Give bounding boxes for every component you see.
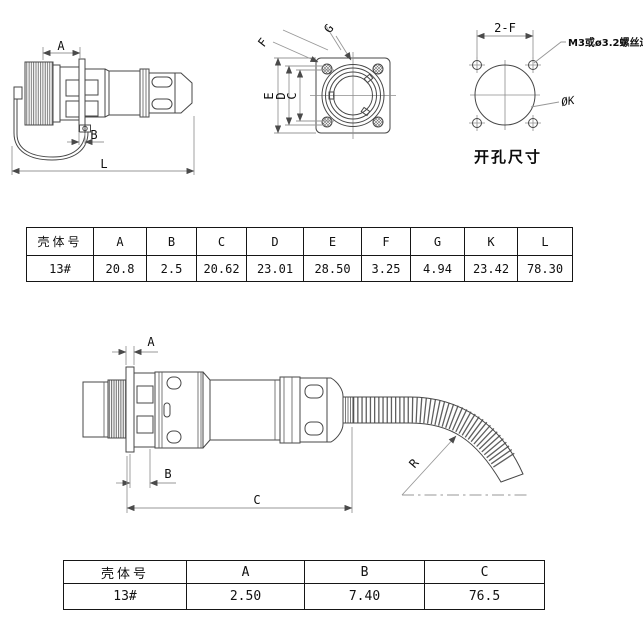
- table-header-row: 壳体号 A B C D E F G K L: [27, 228, 573, 256]
- value-cell: 23.01: [247, 256, 304, 282]
- value-cell: 2.5: [147, 256, 197, 282]
- dim-label-g: G: [321, 21, 336, 35]
- header-cell: B: [305, 561, 425, 584]
- value-cell: 78.30: [518, 256, 573, 282]
- barrel: [109, 71, 140, 115]
- connector-datasheet-page: { "top_left_view": { "dim_a": "A", "dim_…: [0, 0, 643, 623]
- dim-label-a: A: [57, 40, 65, 53]
- table-data-row: 13# 20.8 2.5 20.62 23.01 28.50 3.25 4.94…: [27, 256, 573, 282]
- value-cell: 13#: [64, 584, 187, 610]
- plug-side-view-drawing: A B L: [5, 40, 217, 186]
- value-cell: 23.42: [465, 256, 518, 282]
- dim-label-2f: 2-F: [494, 21, 516, 35]
- value-cell: 7.40: [305, 584, 425, 610]
- strain-relief: [300, 378, 327, 442]
- value-cell: 28.50: [304, 256, 362, 282]
- key-notch: [361, 107, 370, 115]
- header-cell: L: [518, 228, 573, 256]
- flange-front-view-drawing: E D C F G: [250, 5, 412, 157]
- screw-hole-note: M3或ø3.2螺丝过孔: [568, 36, 643, 49]
- dim-label-r: R: [406, 455, 422, 470]
- table-data-row: 13# 2.50 7.40 76.5: [64, 584, 545, 610]
- value-cell: 2.50: [187, 584, 305, 610]
- coupling-drum: [60, 67, 79, 120]
- clamp-nut: [140, 69, 149, 117]
- shell-dimension-table-bottom: 壳体号 A B C 13# 2.50 7.40 76.5: [63, 560, 545, 610]
- value-cell: 13#: [27, 256, 94, 282]
- header-cell: A: [94, 228, 147, 256]
- header-cell: 壳体号: [64, 561, 187, 584]
- dim-label-b: B: [164, 467, 171, 481]
- corner-hole: [322, 117, 332, 127]
- dimension-lines: [273, 26, 351, 133]
- header-cell: K: [465, 228, 518, 256]
- plug-body-geometry: [14, 59, 192, 160]
- flange-geometry: [310, 52, 396, 139]
- value-cell: 76.5: [425, 584, 545, 610]
- cap-ring: [53, 65, 60, 122]
- value-cell: 4.94: [411, 256, 465, 282]
- lanyard-cap: [14, 87, 22, 99]
- hole-pattern-drawing: 2-F M3或ø3.2螺丝过孔 ØK 开孔尺寸: [440, 15, 643, 170]
- header-cell: G: [411, 228, 465, 256]
- mounting-flange: [126, 367, 134, 452]
- header-cell: 壳体号: [27, 228, 94, 256]
- gland-nut: [280, 377, 300, 443]
- table-header-row: 壳体号 A B C: [64, 561, 545, 584]
- dim-label-c: C: [285, 92, 299, 99]
- value-cell: 20.8: [94, 256, 147, 282]
- header-cell: D: [247, 228, 304, 256]
- nose-cone: [327, 378, 343, 442]
- rear-body: [85, 69, 105, 117]
- header-cell: C: [197, 228, 247, 256]
- threaded-section: [108, 380, 126, 438]
- corner-hole: [322, 64, 332, 74]
- header-cell: C: [425, 561, 545, 584]
- header-cell: E: [304, 228, 362, 256]
- diameter-leader: [531, 102, 559, 107]
- shell-dimension-table-top: 壳体号 A B C D E F G K L 13# 20.8 2.5 20.62…: [26, 227, 573, 282]
- dim-label-f: F: [255, 35, 270, 49]
- conduit-side-view-drawing: A B C R: [60, 330, 542, 538]
- barrel: [210, 380, 280, 440]
- mounting-flange: [79, 59, 85, 132]
- screw-note-leader: [534, 42, 566, 63]
- dim-label-b: B: [90, 128, 97, 142]
- knurled-cap: [25, 62, 53, 125]
- crosshair-centerlines: [310, 52, 396, 139]
- receptacle-geometry: [83, 367, 353, 452]
- dim-label-c: C: [253, 493, 260, 507]
- dim-label-a: A: [147, 335, 155, 349]
- header-cell: B: [147, 228, 197, 256]
- header-cell: A: [187, 561, 305, 584]
- cutout-caption: 开孔尺寸: [474, 148, 542, 166]
- value-cell: 3.25: [362, 256, 411, 282]
- header-cell: F: [362, 228, 411, 256]
- hole-pattern-geometry: [469, 57, 541, 131]
- dim-label-k: ØK: [560, 94, 577, 109]
- nose-cone: [175, 73, 192, 113]
- coupling-section: [134, 373, 155, 447]
- dim-label-l: L: [100, 157, 107, 171]
- value-cell: 20.62: [197, 256, 247, 282]
